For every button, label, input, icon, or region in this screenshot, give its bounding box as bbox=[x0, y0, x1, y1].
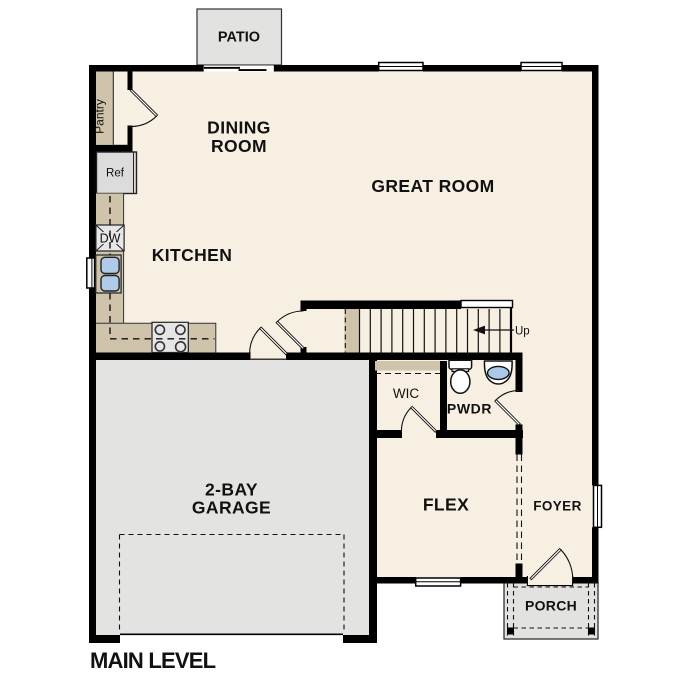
svg-text:Up: Up bbox=[515, 326, 530, 338]
svg-text:FLEX: FLEX bbox=[423, 495, 469, 515]
svg-text:Ref: Ref bbox=[106, 168, 125, 180]
svg-text:KITCHEN: KITCHEN bbox=[152, 245, 233, 265]
svg-text:GREAT ROOM: GREAT ROOM bbox=[371, 176, 494, 196]
svg-text:MAIN LEVEL: MAIN LEVEL bbox=[90, 648, 216, 673]
svg-text:PORCH: PORCH bbox=[525, 598, 577, 614]
svg-text:PATIO: PATIO bbox=[218, 30, 260, 46]
svg-text:GARAGE: GARAGE bbox=[192, 498, 271, 518]
svg-text:WIC: WIC bbox=[393, 386, 419, 401]
svg-text:Pantry: Pantry bbox=[93, 99, 107, 134]
svg-text:FOYER: FOYER bbox=[533, 499, 582, 514]
svg-text:PWDR: PWDR bbox=[447, 401, 492, 417]
svg-text:DINING: DINING bbox=[207, 118, 271, 138]
svg-text:2-BAY: 2-BAY bbox=[205, 480, 258, 500]
svg-text:ROOM: ROOM bbox=[211, 136, 267, 156]
